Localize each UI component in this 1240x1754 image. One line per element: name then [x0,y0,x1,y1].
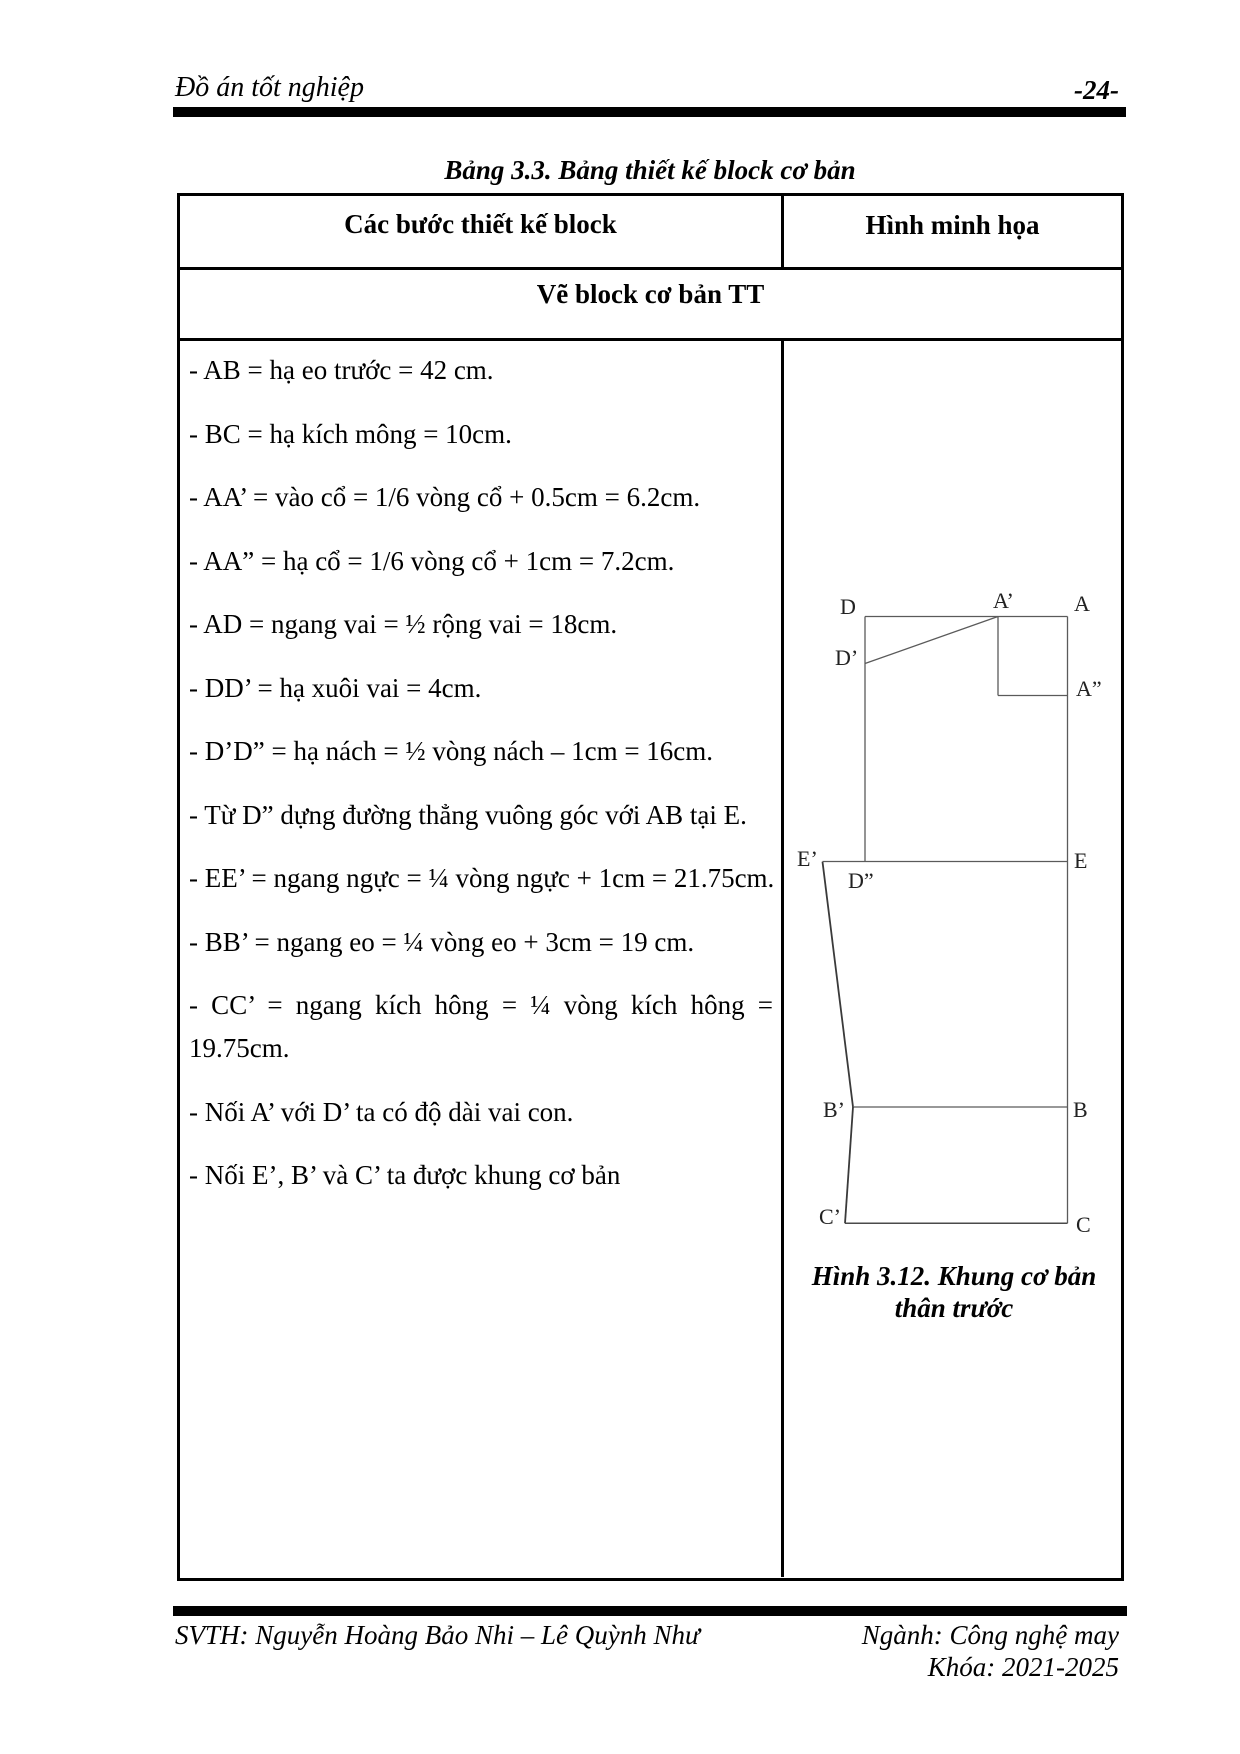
svg-text:A’: A’ [993,588,1014,613]
svg-text:D’: D’ [835,645,858,670]
svg-text:B: B [1073,1097,1088,1122]
svg-text:A”: A” [1076,676,1102,701]
svg-text:D”: D” [848,868,874,893]
svg-text:A: A [1074,591,1090,616]
svg-text:E: E [1074,848,1087,873]
svg-text:E’: E’ [797,846,818,871]
svg-text:D: D [840,594,856,619]
svg-text:C’: C’ [819,1204,841,1229]
svg-text:B’: B’ [823,1097,845,1122]
svg-text:C: C [1076,1212,1091,1237]
